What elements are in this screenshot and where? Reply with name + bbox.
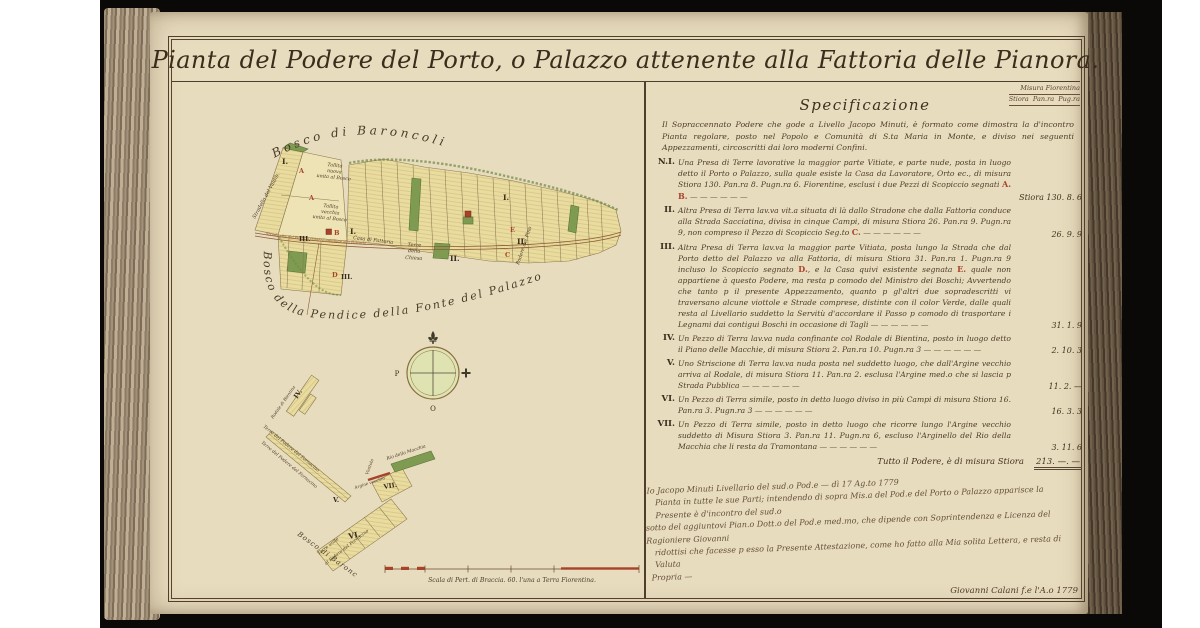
lower-parcel-group <box>266 375 435 571</box>
compass-rose: P O <box>395 331 471 413</box>
east-cross-icon <box>462 369 471 378</box>
entry-number: IV. <box>648 333 675 355</box>
tallita-vecchia-label: Tallita vecchia unita al Bosco <box>312 203 348 224</box>
spec-entries: N.I. Una Presa di Terre lavorative la ma… <box>648 157 1082 452</box>
spec-entry: III. Altra Presa di Terra lav.va la magg… <box>648 242 1082 331</box>
measure-unit-line1: Misura Fiorentina <box>1009 84 1080 95</box>
svg-text:I.: I. <box>503 193 509 202</box>
entry-text: Uno Striscione di Terra lav.va nuda post… <box>678 358 1011 391</box>
entry-value: 2. 10. 3 <box>1014 346 1082 355</box>
total-label: Tutto il Podere, è di misura Stiora <box>877 457 1024 470</box>
entry-text: Un Pezzo di Terra simile, posto in detto… <box>678 419 1011 452</box>
title-band: Pianta del Podere del Porto, o Palazzo a… <box>171 39 1080 82</box>
atlas-photo: Pianta del Podere del Porto, o Palazzo a… <box>0 0 1200 628</box>
entry-text: Un Pezzo di Terra simile, posto in detto… <box>678 394 1011 416</box>
entry-text: Altra Presa di Terra lav.va vit.a situat… <box>678 205 1011 239</box>
spec-intro: Il Sopraccennato Podere che gode a Livel… <box>662 119 1074 154</box>
entry-number: VI. <box>648 394 675 416</box>
svg-text:Bosco di Baroncoli: Bosco di Baroncoli <box>169 83 359 579</box>
entry-text: Una Presa di Terre lavorative la maggior… <box>678 157 1011 202</box>
upper-parcel-group <box>255 143 621 295</box>
entry-value: 26. 9. 9 <box>1014 230 1082 239</box>
house-yard <box>463 217 473 224</box>
entry-number: II. <box>648 205 675 239</box>
map-drawing: Strada che dal Porto o Palazzo conduce a… <box>169 83 644 599</box>
svg-text:V.: V. <box>332 496 339 504</box>
spec-entry: IV. Un Pezzo di Terra lav.va nuda confin… <box>648 333 1082 355</box>
spec-entry: VII. Un Pezzo di Terra simile, posto in … <box>648 419 1082 452</box>
svg-text:A: A <box>298 167 305 175</box>
spec-entry: II. Altra Presa di Terra lav.va vit.a si… <box>648 205 1082 239</box>
svg-text:C: C <box>505 251 510 259</box>
spec-entry: VI. Un Pezzo di Terra simile, posto in d… <box>648 394 1082 416</box>
house-symbol <box>465 211 471 217</box>
parcel-iv <box>286 375 325 421</box>
green-parcel <box>433 243 450 259</box>
tallita-nuova-label: Tallita nuova unita al Bosco <box>316 162 352 183</box>
entry-value: 11. 2. — <box>1014 382 1082 391</box>
entry-text: Un Pezzo di Terra lav.va nuda confinante… <box>678 333 1011 355</box>
svg-text:III.: III. <box>299 235 310 243</box>
entry-text: Altra Presa di Terra lav.va la maggior p… <box>678 242 1011 331</box>
panel-divider <box>644 81 646 599</box>
north-fleur-de-lis-icon <box>428 331 437 344</box>
compass-south-label: O <box>430 405 436 413</box>
book-fore-edge <box>1086 12 1122 614</box>
svg-text:A: A <box>308 194 315 202</box>
svg-text:II.: II. <box>450 254 460 263</box>
cartographer-signature: Giovanni Calani f.e l'A.o 1779 <box>950 586 1078 596</box>
spec-entry: N.I. Una Presa di Terre lavorative la ma… <box>648 157 1082 202</box>
entry-value: 3. 11. 6 <box>1014 443 1082 452</box>
entry-value: 16. 3. 3 <box>1014 407 1082 416</box>
scale-caption: Scala di Pert. di Braccia. 60. l'una a T… <box>428 577 596 584</box>
terre-chiesa-label: Terre della Chiesa <box>405 242 423 262</box>
entry-number: N.I. <box>648 157 675 202</box>
entry-number: V. <box>648 358 675 391</box>
svg-text:III.: III. <box>341 273 352 281</box>
total-value: 213. —. — <box>1034 457 1082 470</box>
scale-bar: Scala di Pert. di Braccia. 60. l'una a T… <box>385 565 639 584</box>
parcel-band <box>347 159 621 263</box>
entry-value: Stiora 130. 8. 6 <box>1014 193 1082 202</box>
total-line: Tutto il Podere, è di misura Stiora 213.… <box>648 457 1082 470</box>
svg-text:Viottola: Viottola <box>364 458 375 476</box>
measure-unit-header: Misura Fiorentina Stiora Pan.ra Pug.ra <box>1009 84 1080 106</box>
house-symbol <box>326 229 332 235</box>
attestation-note: Io Jacopo Minuti Livellario del sud.o Po… <box>646 471 1081 585</box>
spec-entry: V. Uno Striscione di Terra lav.va nuda p… <box>648 358 1082 391</box>
page-title: Pianta del Podere del Porto, o Palazzo a… <box>152 46 1100 74</box>
entry-value: 31. 1. 9 <box>1014 321 1082 330</box>
svg-text:E: E <box>510 226 515 234</box>
entry-number: III. <box>648 242 675 331</box>
measure-unit-line2: Stiora Pan.ra Pug.ra <box>1009 95 1080 106</box>
specification-panel: Misura Fiorentina Stiora Pan.ra Pug.ra S… <box>648 84 1082 598</box>
compass-west-label: P <box>395 370 400 378</box>
svg-text:D: D <box>332 271 338 279</box>
svg-text:I.: I. <box>282 157 288 166</box>
svg-text:B: B <box>334 229 340 237</box>
entry-number: VII. <box>648 419 675 452</box>
